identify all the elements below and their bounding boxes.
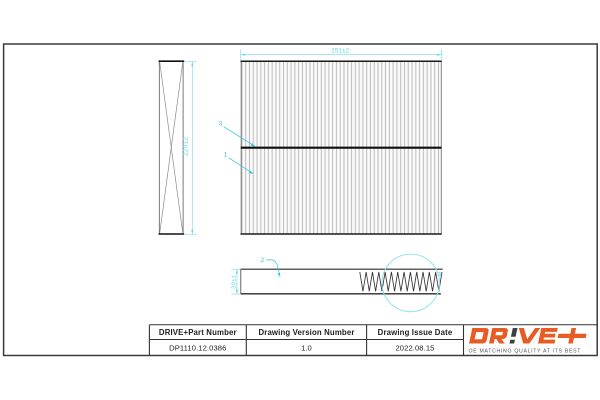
- svg-text:1.0: 1.0: [301, 343, 312, 352]
- svg-text:2: 2: [261, 258, 265, 264]
- svg-text:30±1: 30±1: [231, 275, 237, 289]
- svg-text:DRIVE+Part Number: DRIVE+Part Number: [159, 328, 237, 337]
- svg-text:1: 1: [224, 153, 228, 159]
- svg-text:251±2: 251±2: [331, 48, 349, 55]
- svg-text:Drawing Version Number: Drawing Version Number: [258, 328, 354, 337]
- svg-text:3: 3: [438, 272, 441, 278]
- svg-text:Drawing Issue Date: Drawing Issue Date: [378, 328, 453, 337]
- svg-text:3: 3: [219, 122, 223, 128]
- svg-text:DP1110.12.0386: DP1110.12.0386: [169, 343, 226, 352]
- svg-text:2022.08.15: 2022.08.15: [395, 343, 434, 352]
- svg-text:OE MATCHING QUALITY AT ITS BES: OE MATCHING QUALITY AT ITS BEST: [469, 348, 582, 354]
- svg-text:220±2: 220±2: [182, 137, 189, 156]
